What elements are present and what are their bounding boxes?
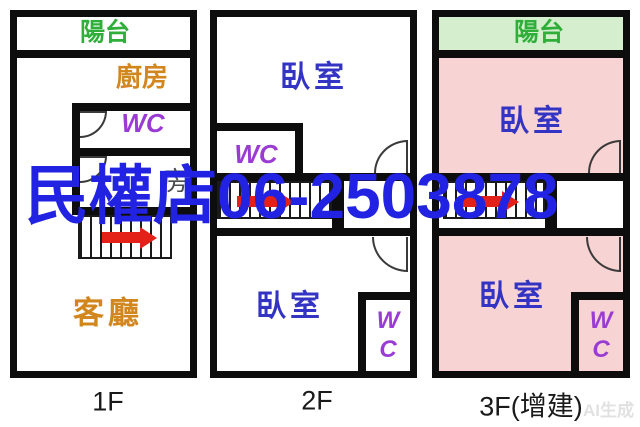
- ai-generated-watermark: AI生成: [583, 396, 634, 421]
- room-label-wc2-w-2f: W: [377, 307, 400, 335]
- room-label-kitchen-1f: 廚房: [116, 64, 168, 90]
- floorplan-image: 陽台 廚房 WC 房 客廳 臥室 WC 臥室 W C 陽台 臥室 臥室 W C: [0, 0, 640, 427]
- floor-caption-2f: 2F: [301, 386, 333, 417]
- floor-caption-1f: 1F: [92, 387, 124, 418]
- room-label-bedroom-bottom-3f: 臥室: [479, 282, 547, 312]
- stair-arrow-icon: [102, 232, 140, 243]
- wall: [358, 292, 366, 371]
- wall: [72, 148, 190, 156]
- room-label-living-1f: 客廳: [73, 298, 143, 329]
- room-label-bedroom-top-2f: 臥室: [280, 63, 348, 93]
- room-label-balcony-3f: 陽台: [514, 21, 564, 46]
- floor-caption-3f: 3F(增建): [479, 385, 583, 424]
- room-label-balcony-1f: 陽台: [80, 21, 130, 46]
- wall: [217, 123, 303, 131]
- room-label-bedroom-bottom-2f: 臥室: [256, 292, 324, 322]
- room-label-wc-w-3f: W: [590, 307, 613, 335]
- wall: [17, 50, 190, 58]
- room-label-wc2-c-2f: C: [379, 336, 396, 364]
- room-label-wc-1f: WC: [121, 110, 164, 136]
- wall: [439, 50, 623, 58]
- phone-watermark: 民權店06-2503878: [25, 164, 559, 228]
- wall: [571, 292, 579, 371]
- room-label-wc-c-3f: C: [592, 336, 609, 364]
- room-label-bedroom-top-3f: 臥室: [499, 107, 567, 137]
